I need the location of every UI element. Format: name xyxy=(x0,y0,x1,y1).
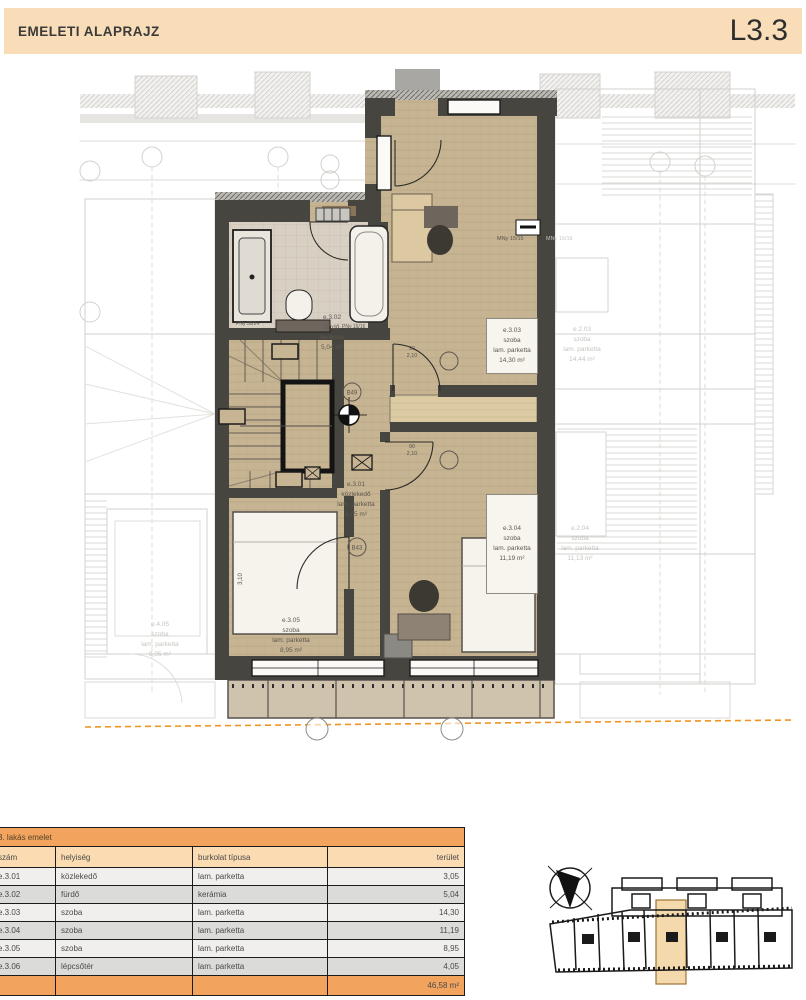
door-dim: 90 xyxy=(409,444,415,450)
window-north xyxy=(448,100,500,114)
page-title: EMELETI ALAPRAJZ xyxy=(18,24,160,39)
title-bar: EMELETI ALAPRAJZ L3.3 xyxy=(4,8,802,54)
marker-circle xyxy=(306,718,328,740)
table-row: e.3.06lépcsőtér lam. parketta4,05 xyxy=(0,958,465,976)
keyplan-area xyxy=(540,856,802,988)
wardrobe-band xyxy=(390,395,537,424)
room-label-302: e.3.02 fürdő kerámia 5,04 m² xyxy=(300,310,364,356)
col-header-helyiseg: helyiség xyxy=(56,847,193,868)
room-label-204: e.2.04 szoba lam. parketta 11,13 m² xyxy=(550,520,610,568)
window-west xyxy=(377,136,391,190)
balcony xyxy=(228,680,554,718)
chair-304 xyxy=(409,580,439,612)
desk-303 xyxy=(424,206,458,228)
chair-303 xyxy=(427,225,453,255)
table-row: e.3.01közlekedő lam. parketta3,05 xyxy=(0,868,465,886)
table-row: e.3.03szoba lam. parketta14,30 xyxy=(0,904,465,922)
door-dim: 2,10 xyxy=(407,353,418,359)
window-code: MNy 15/15 xyxy=(497,236,524,242)
table-total-row: 46,58 m² xyxy=(0,976,465,996)
room-schedule: 3. lakás emelet szám helyiség burkolat t… xyxy=(0,827,465,996)
room-schedule-table: 3. lakás emelet szám helyiség burkolat t… xyxy=(0,827,465,996)
sill-code: PNy 30/24 xyxy=(236,321,260,327)
room-label-405: e.4.05 szoba lam. parketta 8,95 m² xyxy=(116,614,204,666)
door-dim: 90 xyxy=(409,346,415,352)
plan-linework: B49 B43 MNy 15/15 MNy 16/16 PNy 30/24 PN… xyxy=(0,54,806,799)
floorplan-sheet: { "header": { "title": "EMELETI ALAPRAJZ… xyxy=(0,0,806,1000)
door-tag-label: B49 xyxy=(347,391,358,397)
room-label-301: e.3.01 közlekedő lam. parketta 3,05 m² xyxy=(328,478,384,522)
desk-304 xyxy=(398,614,450,640)
door-tag-label: B43 xyxy=(352,546,363,552)
total-area: 46,58 m² xyxy=(328,976,465,996)
table-title: 3. lakás emelet xyxy=(0,828,465,847)
section-line xyxy=(85,720,795,727)
col-header-burkolat: burkolat típusa xyxy=(193,847,328,868)
plan-code: L3.3 xyxy=(730,14,788,48)
floorplan-drawing: B49 B43 MNy 15/15 MNy 16/16 PNy 30/24 PN… xyxy=(0,54,806,824)
col-header-szam: szám xyxy=(0,847,56,868)
window-code-ghost: MNy 16/16 xyxy=(546,236,573,242)
door-dim: 2,10 xyxy=(407,451,418,457)
table-row: e.3.05szoba lam. parketta8,95 xyxy=(0,940,465,958)
table-row: e.3.04szoba lam. parketta11,19 xyxy=(0,922,465,940)
col-header-terulet: terület xyxy=(328,847,465,868)
room-label-203: e.2.03 szoba lam. parketta 14,44 m² xyxy=(553,320,611,370)
room-label-303: e.3.03 szoba lam. parketta 14,30 m² xyxy=(486,318,538,374)
room-label-305: e.3.05 szoba lam. parketta 8,95 m² xyxy=(256,612,326,660)
table-row: e.3.02fürdő kerámia5,04 xyxy=(0,886,465,904)
room-label-304: e.3.04 szoba lam. parketta 11,19 m² xyxy=(486,494,538,594)
dimension: 3,10 xyxy=(238,573,244,585)
north-arrow-icon xyxy=(548,866,592,910)
marker-circle xyxy=(441,718,463,740)
radiator xyxy=(316,208,350,221)
